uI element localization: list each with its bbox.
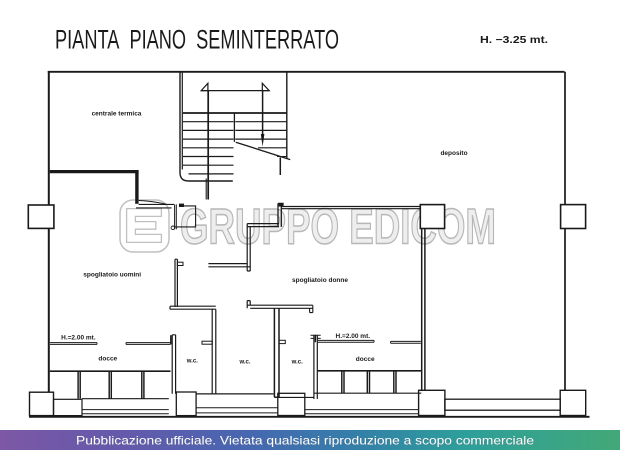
svg-text:w.c.: w.c. xyxy=(186,359,198,365)
svg-text:H. −3.25 mt.: H. −3.25 mt. xyxy=(480,35,548,46)
svg-text:w.c.: w.c. xyxy=(291,360,303,366)
svg-text:H.=2.00 mt.: H.=2.00 mt. xyxy=(61,334,96,341)
svg-text:centrale termica: centrale termica xyxy=(92,110,142,117)
svg-text:spogliatoio uomini: spogliatoio uomini xyxy=(83,272,141,279)
svg-text:spogliatoio donne: spogliatoio donne xyxy=(292,277,348,284)
svg-text:H.=2.00 mt.: H.=2.00 mt. xyxy=(336,333,371,340)
svg-text:deposito: deposito xyxy=(440,150,467,157)
svg-text:PIANTA PIANO SEMINTERRATO: PIANTA PIANO SEMINTERRATO xyxy=(55,25,339,55)
svg-text:docce: docce xyxy=(356,356,375,363)
svg-text:w.c.: w.c. xyxy=(238,360,250,366)
svg-text:Pubblicazione ufficiale. Vieta: Pubblicazione ufficiale. Vietata qualsia… xyxy=(76,434,534,448)
svg-text:docce: docce xyxy=(98,356,117,363)
